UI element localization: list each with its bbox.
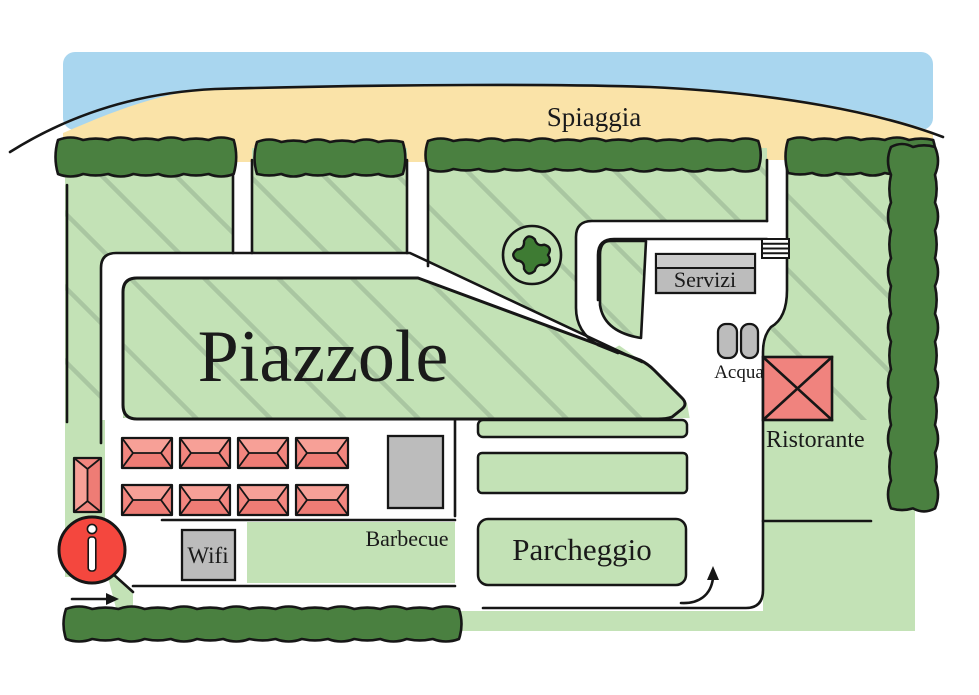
label-barbecue: Barbecue <box>365 526 448 551</box>
tent-icon <box>238 438 288 468</box>
entrance-arrow-icon <box>72 593 119 605</box>
beach-steps-icon <box>762 239 789 258</box>
hedge-top-1 <box>56 138 237 177</box>
tent-icon <box>180 485 230 515</box>
label-piazzole: Piazzole <box>198 316 449 398</box>
label-ristorante: Ristorante <box>766 427 865 453</box>
tent-icon <box>180 438 230 468</box>
info-point-icon <box>59 517 125 583</box>
hedge-bottom <box>64 607 462 642</box>
ristorante-building <box>763 357 832 420</box>
map-drawing: Spiaggia Piazzole Servizi Acqua Ristoran… <box>0 0 979 695</box>
hedge-top-3 <box>426 139 761 172</box>
tent-icon <box>122 438 172 468</box>
parking-strip <box>478 453 687 493</box>
label-wifi: Wifi <box>187 543 228 568</box>
beach-path <box>233 162 252 254</box>
tent-icon <box>296 438 348 468</box>
label-servizi: Servizi <box>674 267 736 292</box>
parking-strip <box>478 420 687 437</box>
grass-strip-bottom <box>458 611 915 631</box>
beach-sand <box>767 148 787 162</box>
beach-path <box>407 162 428 266</box>
campground-map: Spiaggia Piazzole Servizi Acqua Ristoran… <box>0 0 979 695</box>
tent-icon <box>122 485 172 515</box>
hedge-right <box>888 144 938 511</box>
tent-icon <box>74 458 101 512</box>
tent-icon <box>296 485 348 515</box>
label-spiaggia: Spiaggia <box>547 102 642 132</box>
tent-icon <box>238 485 288 515</box>
hedge-top-2 <box>255 140 406 177</box>
label-parcheggio: Parcheggio <box>512 532 651 567</box>
tree-icon <box>503 226 561 284</box>
barbecue-building <box>388 436 443 508</box>
label-acqua: Acqua <box>714 362 764 383</box>
